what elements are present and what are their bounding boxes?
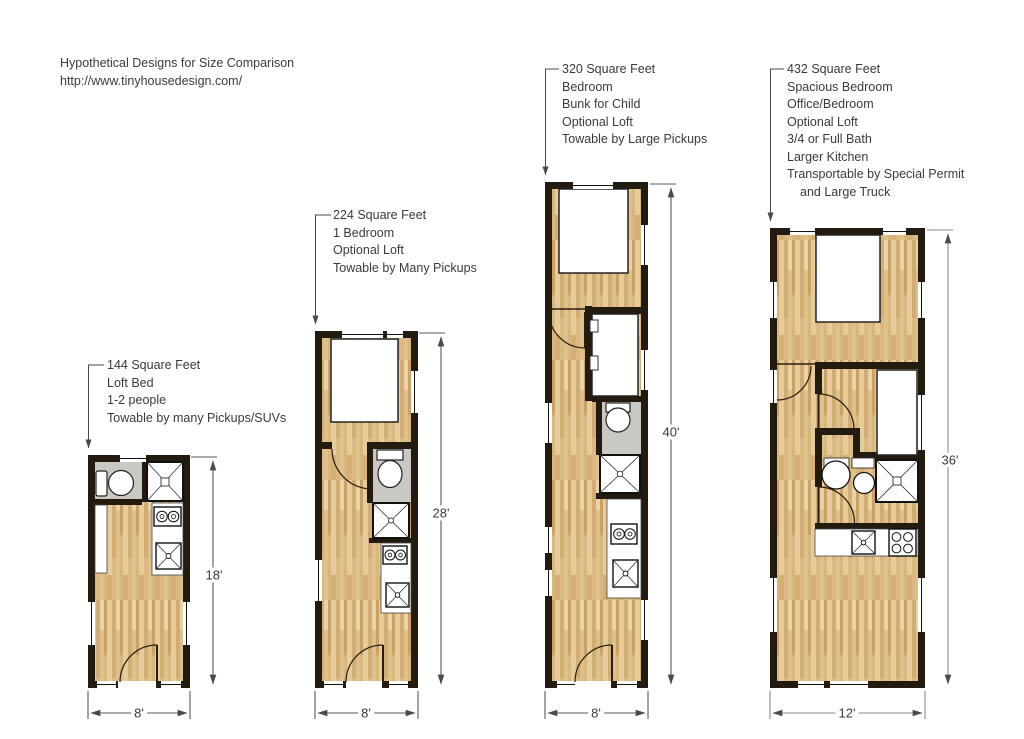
interior-wall xyxy=(815,362,822,394)
feature-line: Optional Loft xyxy=(562,114,707,132)
label-leader-line xyxy=(316,215,332,324)
bed xyxy=(559,189,628,273)
label-leader-line xyxy=(546,69,560,175)
dim-length-144: 18' xyxy=(203,568,226,583)
plan-224-label: 224 Square Feet 1 Bedroom Optional Loft … xyxy=(333,207,477,277)
feature-line: 3/4 or Full Bath xyxy=(787,131,964,149)
feature-line: 432 Square Feet xyxy=(787,61,964,79)
toilet-icon xyxy=(606,403,630,432)
stove-icon xyxy=(889,529,916,556)
feature-line: Larger Kitchen xyxy=(787,149,964,167)
label-leader-line xyxy=(771,69,785,221)
feature-line: 224 Square Feet xyxy=(333,207,477,225)
stove-icon xyxy=(383,546,407,564)
interior-wall xyxy=(596,401,602,455)
feature-line: Bunk for Child xyxy=(562,96,707,114)
feature-line: Spacious Bedroom xyxy=(787,79,964,97)
interior-wall xyxy=(322,442,332,449)
shower-icon xyxy=(147,462,183,501)
dim-length-320: 40' xyxy=(660,425,683,440)
interior-wall xyxy=(822,362,918,369)
dim-length-432: 36' xyxy=(939,453,962,468)
toilet-icon xyxy=(377,450,403,488)
interior-wall xyxy=(367,442,411,449)
dim-width-320: 8' xyxy=(588,706,604,721)
counter xyxy=(95,505,107,573)
feature-line: Towable by Large Pickups xyxy=(562,131,707,149)
feature-line: 1 Bedroom xyxy=(333,225,477,243)
feature-line: Transportable by Special Permit xyxy=(787,166,964,184)
interior-wall xyxy=(815,428,822,487)
shower-icon xyxy=(600,455,640,493)
feature-line: Office/Bedroom xyxy=(787,96,964,114)
dim-width-144: 8' xyxy=(131,706,147,721)
toilet-icon xyxy=(96,471,134,497)
stove-icon xyxy=(154,507,181,526)
sink-icon xyxy=(852,531,875,554)
bunk-bed xyxy=(590,314,638,396)
title-block: Hypothetical Designs for Size Comparison… xyxy=(60,55,294,90)
label-leader-line xyxy=(89,365,105,448)
interior-wall xyxy=(853,428,860,459)
interior-wall xyxy=(815,523,918,529)
dim-width-432: 12' xyxy=(836,706,859,721)
feature-line: Optional Loft xyxy=(333,242,477,260)
feature-line: 320 Square Feet xyxy=(562,61,707,79)
page: Hypothetical Designs for Size Comparison… xyxy=(0,0,1024,739)
feature-line: Loft Bed xyxy=(107,375,286,393)
dim-length-224: 28' xyxy=(430,506,453,521)
interior-wall xyxy=(822,428,853,435)
feature-line: Bedroom xyxy=(562,79,707,97)
feature-line: Towable by Many Pickups xyxy=(333,260,477,278)
sink-icon xyxy=(386,583,409,607)
page-title: Hypothetical Designs for Size Comparison xyxy=(60,55,294,73)
bed xyxy=(331,339,398,422)
feature-line: 144 Square Feet xyxy=(107,357,286,375)
floorplan-320-sqft xyxy=(545,69,676,719)
bathroom-sink-icon xyxy=(822,458,850,489)
plan-432-label: 432 Square Feet Spacious Bedroom Office/… xyxy=(787,61,964,201)
feature-line: and Large Truck xyxy=(787,184,964,202)
interior-wall xyxy=(95,499,142,505)
shower-icon xyxy=(876,460,918,502)
plan-320-label: 320 Square Feet Bedroom Bunk for Child O… xyxy=(562,61,707,149)
feature-line: Optional Loft xyxy=(787,114,964,132)
office-bed xyxy=(877,370,917,455)
dim-width-224: 8' xyxy=(358,706,374,721)
interior-wall xyxy=(592,307,641,314)
shower-icon xyxy=(373,503,409,538)
page-url: http://www.tinyhousedesign.com/ xyxy=(60,73,294,91)
sink-icon xyxy=(156,543,181,569)
stove-icon xyxy=(611,524,637,544)
plan-144-label: 144 Square Feet Loft Bed 1-2 people Towa… xyxy=(107,357,286,427)
sink-icon xyxy=(613,560,638,587)
feature-line: 1-2 people xyxy=(107,392,286,410)
floorplan-224-sqft xyxy=(315,215,445,719)
feature-line: Towable by many Pickups/SUVs xyxy=(107,410,286,428)
bed xyxy=(816,235,880,322)
